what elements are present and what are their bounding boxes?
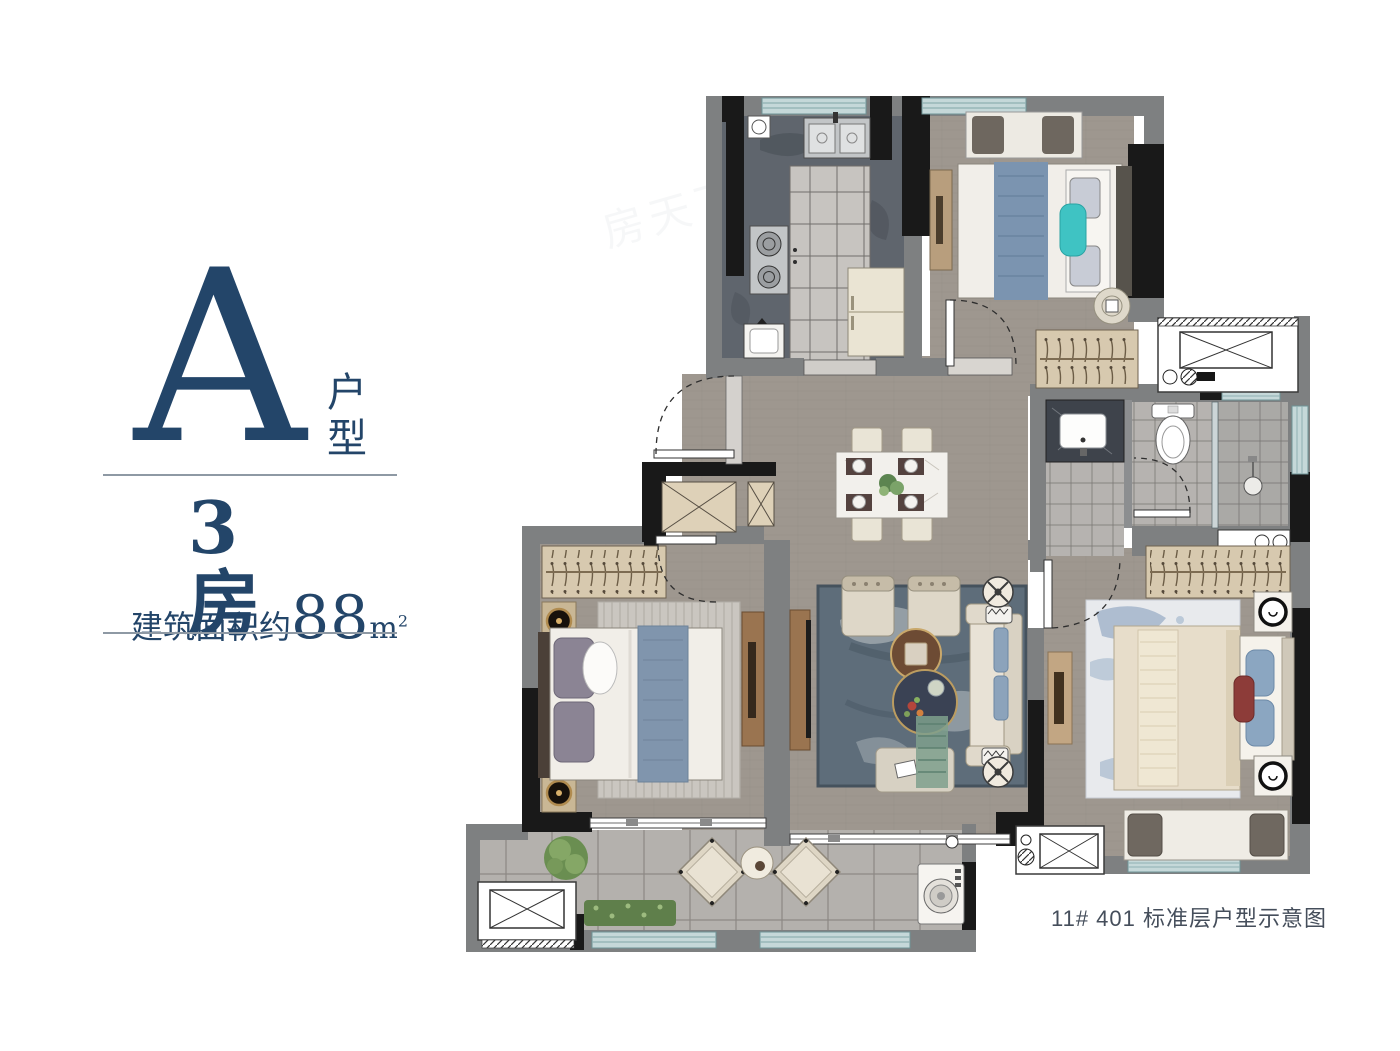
dining-chair — [902, 516, 932, 541]
round-rug — [1094, 288, 1130, 324]
refrigerator — [848, 268, 904, 356]
balcony-table — [741, 847, 773, 879]
throw-blanket — [916, 716, 948, 788]
dining-chair — [852, 428, 882, 453]
nightstand — [1254, 592, 1292, 632]
bed-left — [538, 626, 722, 782]
side-table — [983, 577, 1013, 607]
headboard — [538, 632, 550, 778]
nightstand — [1254, 756, 1292, 796]
sliding-door-bedroom-balcony — [590, 818, 766, 828]
washing-machine — [918, 864, 964, 924]
tv — [806, 620, 811, 738]
kitchen-appliance — [744, 318, 784, 358]
wardrobe-left-bedroom — [542, 546, 666, 598]
living-room — [790, 576, 1026, 792]
sofa — [966, 604, 1022, 766]
headboard — [1282, 638, 1294, 760]
vanity — [1046, 400, 1124, 462]
tv-console-bedroom — [742, 612, 764, 746]
entry-shafts — [662, 482, 774, 532]
dining-chair — [902, 428, 932, 453]
tv-console-living — [790, 610, 811, 750]
bench — [966, 112, 1082, 158]
ac-platform-master — [1016, 826, 1104, 874]
window-kitchen-top — [762, 98, 866, 114]
dining-chair — [852, 516, 882, 541]
hall-threshold — [948, 358, 1012, 375]
kitchen-sink — [804, 112, 870, 158]
ac-platform-left — [478, 882, 576, 948]
ac-platform-topright — [1158, 318, 1298, 392]
kitchen-threshold — [804, 360, 876, 375]
armchair — [908, 576, 960, 636]
headboard — [1116, 166, 1132, 296]
drain-symbol — [946, 836, 958, 848]
bed-bench — [1124, 810, 1288, 860]
floor-plan-graphic — [0, 0, 1400, 1051]
armchair — [842, 576, 894, 636]
shower-glass — [1212, 402, 1218, 528]
window-balcony-right — [760, 932, 910, 948]
window-balcony-left — [592, 932, 716, 948]
vent-symbol — [748, 116, 770, 138]
balcony-shrub — [584, 900, 676, 926]
balcony-plant — [544, 836, 588, 880]
sliding-door-living-balcony — [790, 834, 1010, 844]
wardrobe-top-bedroom — [1036, 330, 1138, 388]
bed-top — [958, 162, 1132, 300]
master-dresser — [1048, 652, 1072, 744]
window-bath-right — [1292, 406, 1308, 474]
side-table — [983, 757, 1013, 787]
wardrobe-master — [1146, 546, 1290, 598]
